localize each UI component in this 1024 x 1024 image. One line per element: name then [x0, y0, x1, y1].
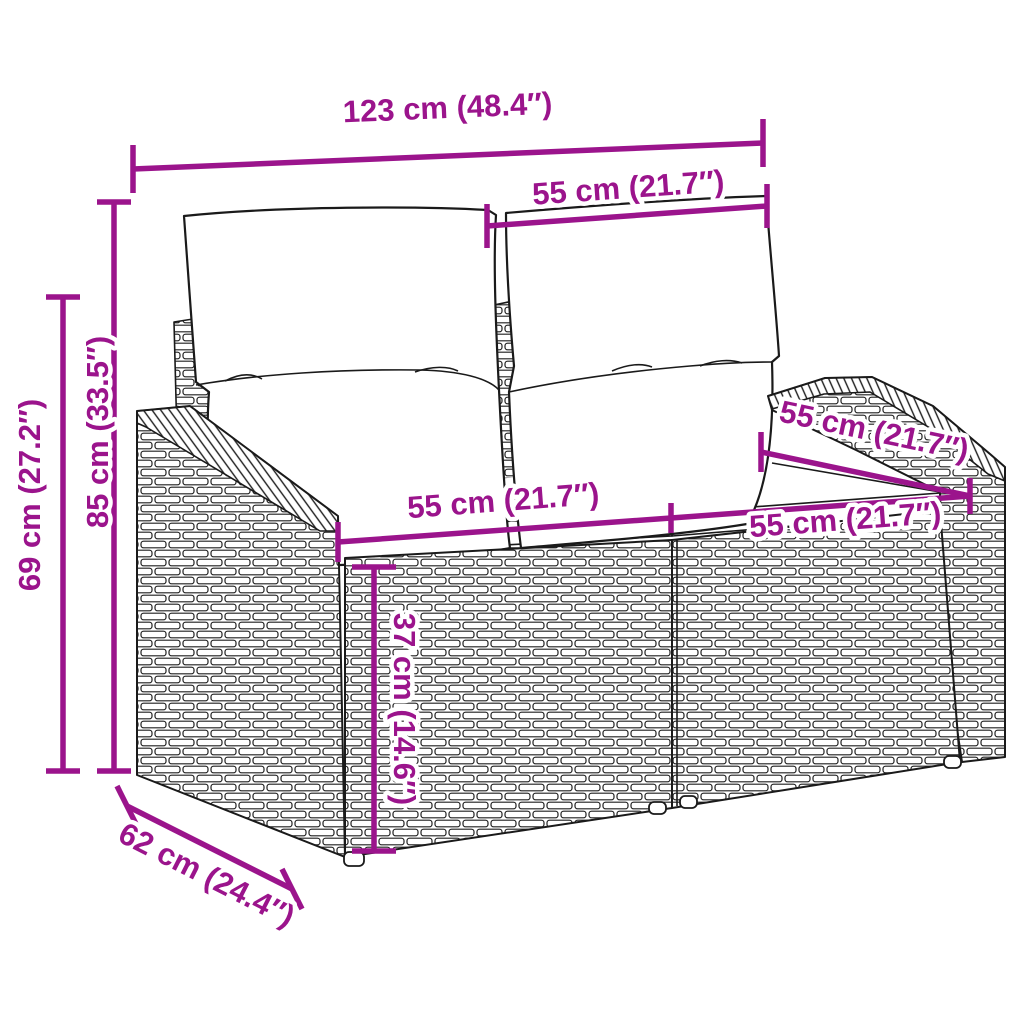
dim-seat-height-label: 37 cm (14.6″)	[387, 613, 422, 805]
dim-overall-width-label: 123 cm (48.4″)	[342, 86, 553, 130]
dim-overall-height-label: 85 cm (33.5″)	[80, 336, 115, 528]
dim-overall-depth-label: 62 cm (24.4″)	[113, 815, 300, 934]
diagram-svg: 123 cm (48.4″) 55 cm (21.7″) 85 cm (33.5…	[0, 0, 1024, 1024]
dim-overall-height: 85 cm (33.5″)	[80, 202, 131, 771]
product-dimension-diagram: 123 cm (48.4″) 55 cm (21.7″) 85 cm (33.5…	[0, 0, 1024, 1024]
dim-armrest-height-label: 69 cm (27.2″)	[12, 399, 47, 591]
dim-armrest-height: 69 cm (27.2″)	[12, 297, 80, 771]
